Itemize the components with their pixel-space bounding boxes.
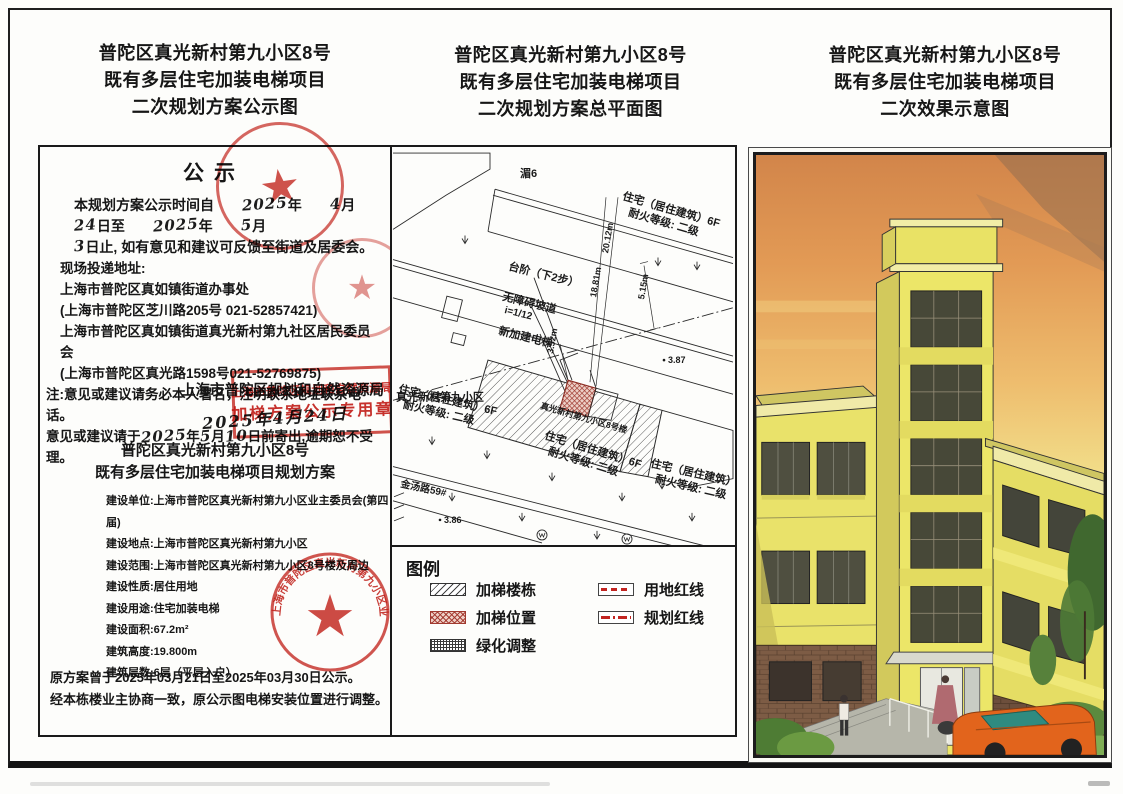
- star-icon: ★: [347, 271, 377, 305]
- title-line: 普陀区真光新村第九小区8号: [398, 42, 743, 69]
- legend-swatch-greenery: [430, 639, 466, 652]
- title-line: 二次规划方案公示图: [38, 94, 392, 121]
- handwritten-year: 2025: [124, 213, 199, 239]
- dimension-label: 3.52m: [545, 327, 559, 354]
- plan-labels: 湄6 住宅（居住建筑）6F 耐火等级: 二级 真光新村第九小区 台阶（下2步） …: [394, 166, 735, 525]
- dimension-label: 5.15m: [636, 273, 650, 300]
- text-segment: 本规划方案公示时间自: [74, 197, 214, 213]
- legend-label: 用地红线: [644, 579, 704, 600]
- title-line: 普陀区真光新村第九小区8号: [38, 40, 392, 67]
- text-segment: 月: [341, 197, 355, 213]
- rendering-inner-frame: [753, 152, 1107, 758]
- right-panel-title: 普陀区真光新村第九小区8号 既有多层住宅加装电梯项目 二次效果示意图: [775, 42, 1115, 123]
- title-line: 二次效果示意图: [775, 96, 1115, 123]
- middle-panel-title: 普陀区真光新村第九小区8号 既有多层住宅加装电梯项目 二次规划方案总平面图: [398, 42, 743, 123]
- title-line: 既有多层住宅加装电梯项目: [398, 69, 743, 96]
- entrance-canopy: [886, 652, 1006, 664]
- planning-bureau-rect-stamp: 上海市普陀区规划和自然资源局 加梯方案公示专用章: [231, 365, 393, 439]
- legend-label: 规划红线: [644, 607, 704, 628]
- title-line: 既有多层住宅加装电梯项目: [775, 69, 1115, 96]
- site-plan-drawing: 湄6 住宅（居住建筑）6F 耐火等级: 二级 真光新村第九小区 台阶（下2步） …: [392, 147, 735, 545]
- elevator-tower: [876, 219, 1006, 755]
- legend-label: 加梯位置: [476, 607, 536, 628]
- spot-elevation: 3.87: [663, 355, 686, 365]
- title-line: 二次规划方案总平面图: [398, 96, 743, 123]
- scan-artifact: [30, 782, 550, 786]
- legend-label: 绿化调整: [476, 635, 536, 656]
- tower-glazing: [899, 291, 993, 642]
- text-segment: 日至: [97, 218, 125, 234]
- plan-subheading: 既有多层住宅加装电梯项目规划方案: [48, 461, 382, 482]
- steps-label: 台阶（下2步）: [507, 259, 580, 290]
- svg-text:3.87: 3.87: [668, 355, 686, 365]
- sky-streak: [756, 339, 890, 349]
- handwritten-day: 24: [45, 214, 97, 238]
- legend-box: 图例 加梯楼栋 加梯位置 绿化调整 用地红线 规划红线: [392, 545, 735, 735]
- owners-committee-round-stamp: 上海市普陀区真光新村第九小区业主委员会(第四届) ★: [268, 550, 392, 674]
- legend-title: 图例: [406, 555, 440, 580]
- legend-swatch-hatch: [430, 583, 466, 596]
- scan-artifact: [1088, 781, 1110, 786]
- rendering-frame: [748, 147, 1112, 763]
- plan-subheading: 普陀区真光新村第九小区8号: [48, 439, 382, 460]
- stamp-text: 加梯方案公示专用章: [231, 395, 394, 425]
- building-rendering: [756, 155, 1104, 755]
- text-segment: 年: [199, 218, 213, 234]
- legend-swatch-elevator: [430, 611, 466, 624]
- spot-elevation: 3.86: [439, 515, 462, 525]
- legend-swatch-planning-redline: [598, 611, 634, 624]
- handwritten-day: 3: [45, 236, 86, 260]
- svg-text:3.86: 3.86: [444, 515, 462, 525]
- title-line: 既有多层住宅加装电梯项目: [38, 67, 392, 94]
- scanned-notice-sheet: 普陀区真光新村第九小区8号 既有多层住宅加装电梯项目 二次规划方案公示图 普陀区…: [0, 0, 1123, 794]
- title-line: 普陀区真光新村第九小区8号: [775, 42, 1115, 69]
- legend-label: 加梯楼栋: [476, 579, 536, 600]
- road-label: 金汤路59#: [398, 477, 448, 500]
- revision-line: 经本栋楼业主协商一致，原公示图电梯安装位置进行调整。: [50, 689, 388, 711]
- dimension-label: 18.81m: [588, 266, 603, 298]
- detail-row: 建设单位:上海市普陀区真光新村第九小区业主委员会(第四届): [106, 491, 390, 534]
- river-label: 湄6: [520, 166, 537, 180]
- star-icon: ★: [304, 584, 356, 649]
- star-icon: ★: [256, 160, 303, 211]
- left-panel-title: 普陀区真光新村第九小区8号 既有多层住宅加装电梯项目 二次规划方案公示图: [38, 40, 392, 121]
- site-plan-panel: 湄6 住宅（居住建筑）6F 耐火等级: 二级 真光新村第九小区 台阶（下2步） …: [390, 145, 737, 737]
- left-wing: [756, 386, 876, 755]
- legend-swatch-land-redline: [598, 583, 634, 596]
